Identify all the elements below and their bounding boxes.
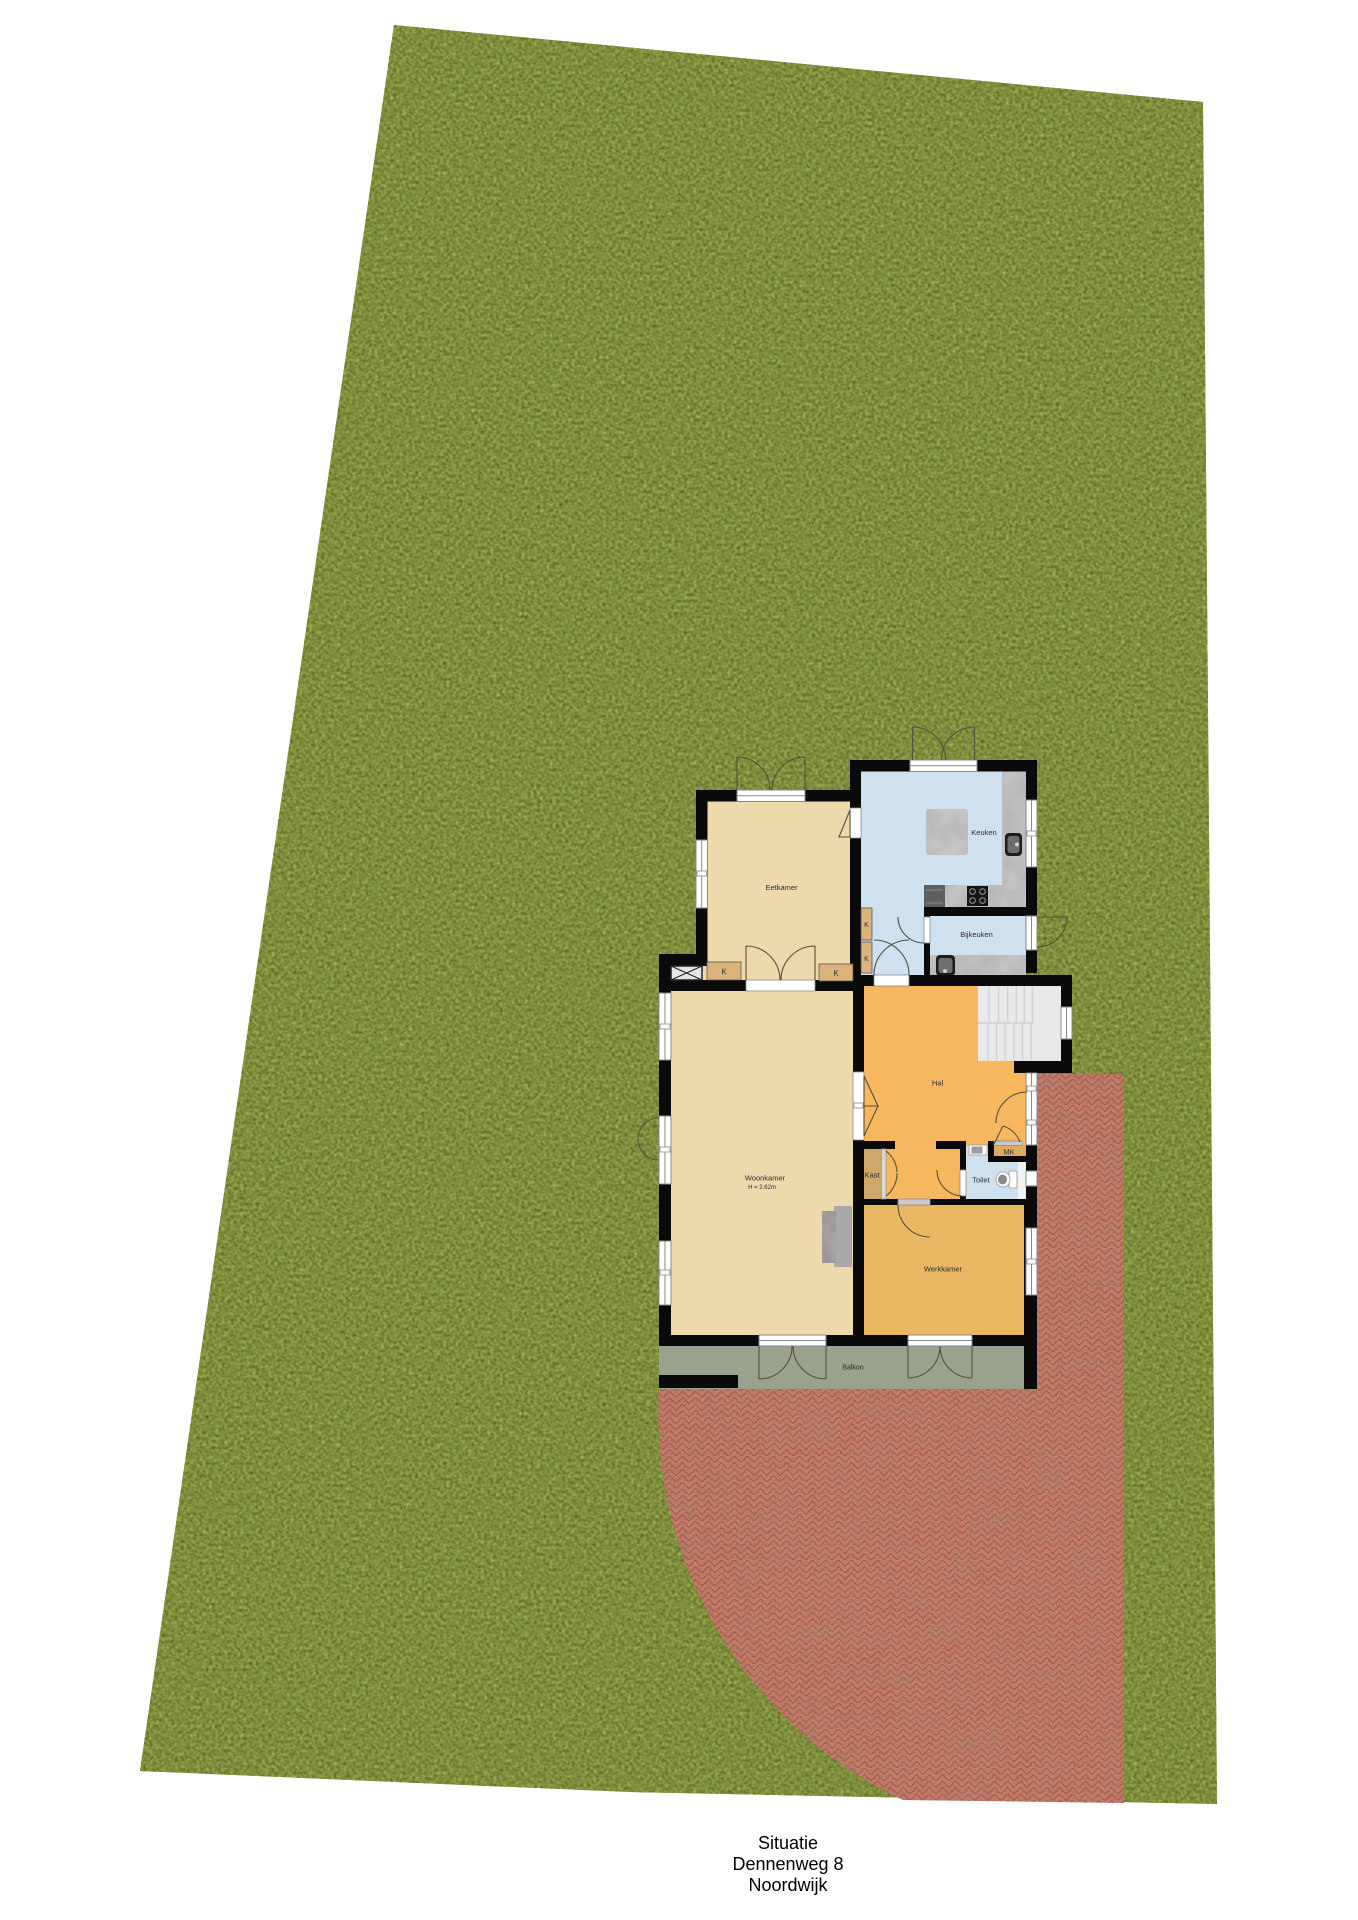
svg-text:K: K — [721, 968, 727, 977]
svg-text:Toilet: Toilet — [972, 1176, 990, 1185]
svg-text:MK: MK — [1003, 1148, 1014, 1157]
svg-text:Kast: Kast — [864, 1171, 880, 1180]
svg-text:K: K — [833, 969, 839, 978]
svg-text:Noordwijk: Noordwijk — [748, 1875, 828, 1895]
svg-text:Situatie: Situatie — [758, 1833, 818, 1853]
svg-text:Bijkeuken: Bijkeuken — [960, 930, 993, 939]
svg-text:Balkon: Balkon — [842, 1365, 864, 1372]
svg-text:Dennenweg 8: Dennenweg 8 — [732, 1854, 843, 1874]
svg-text:K: K — [864, 922, 869, 929]
svg-text:Keuken: Keuken — [971, 828, 996, 837]
svg-text:Hal: Hal — [932, 1079, 944, 1088]
svg-text:Werkkamer: Werkkamer — [924, 1265, 963, 1274]
svg-text:Woonkamer: Woonkamer — [745, 1174, 786, 1183]
svg-text:K: K — [864, 956, 869, 963]
svg-text:Eetkamer: Eetkamer — [765, 883, 798, 892]
svg-text:H = 2.62m: H = 2.62m — [748, 1185, 776, 1191]
